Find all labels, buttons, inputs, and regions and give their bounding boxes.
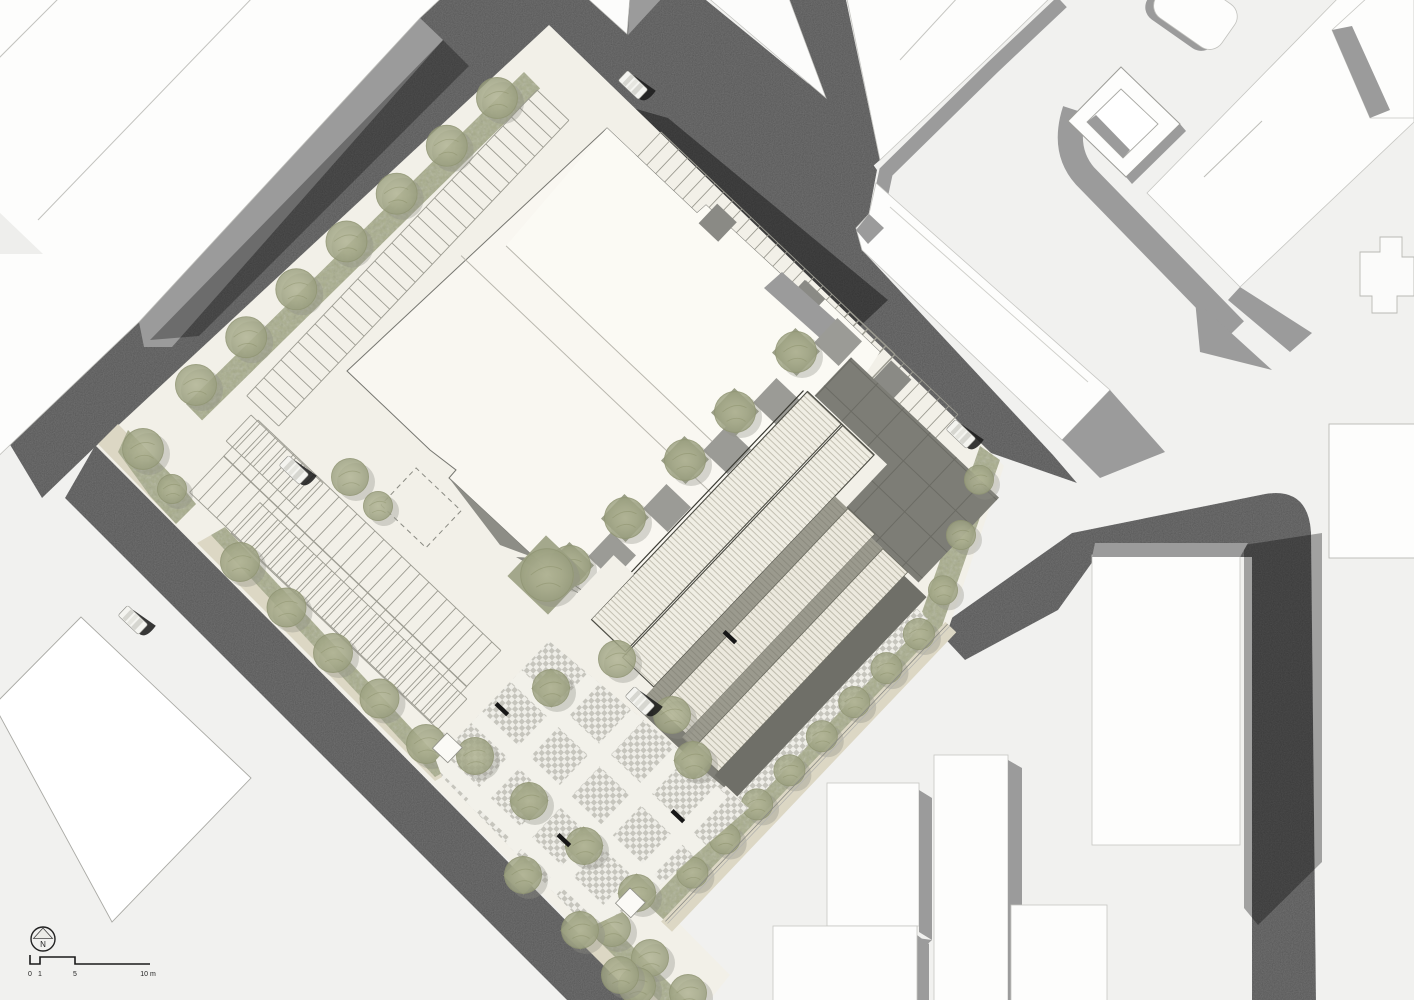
svg-text:5: 5 [73,971,77,978]
svg-text:N: N [40,940,46,949]
svg-text:1: 1 [38,971,42,978]
svg-text:10 m: 10 m [140,971,156,978]
svg-text:0: 0 [28,971,32,978]
